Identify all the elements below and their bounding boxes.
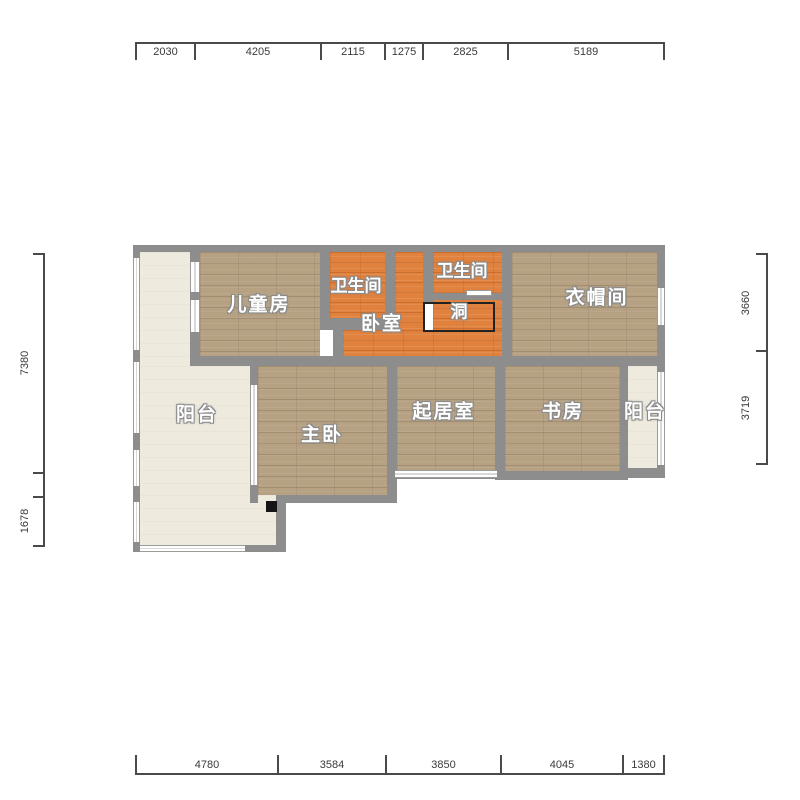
room-label-opening: 洞 [451, 298, 468, 323]
dim-label: 5189 [509, 44, 665, 60]
room-label-balcony-left: 阳台 [176, 400, 218, 427]
dim-label: 3584 [279, 755, 387, 773]
tick [33, 472, 45, 474]
window [133, 502, 140, 542]
window [190, 300, 200, 332]
wall [502, 245, 512, 358]
tick [33, 253, 45, 255]
dim-label: 2825 [424, 44, 509, 60]
shelf-bar [466, 290, 492, 296]
room-label-bath-left: 卫生间 [331, 272, 382, 297]
dimension-line-left: 7380 1678 [33, 253, 45, 547]
window [133, 450, 140, 486]
wall [620, 468, 665, 478]
column-marker [266, 501, 277, 512]
dim-label: 1380 [624, 755, 665, 773]
floor-plan-canvas: 2030 4205 2115 1275 2825 5189 4780 3584 … [0, 0, 800, 800]
window [250, 385, 258, 485]
dim-label: 3660 [740, 291, 752, 315]
room-label-cloakroom: 衣帽间 [565, 283, 628, 310]
window [133, 258, 140, 350]
window [133, 362, 140, 433]
tick [756, 463, 768, 465]
dim-label: 4045 [502, 755, 624, 773]
room-label-bedroom: 卧室 [361, 309, 403, 336]
floor-balcony-left [140, 252, 191, 366]
dim-label: 4780 [135, 755, 279, 773]
window [140, 545, 245, 552]
wall [276, 495, 397, 503]
tick [33, 496, 45, 498]
window [657, 288, 665, 325]
wall [495, 358, 505, 480]
floor-balcony-left [140, 366, 250, 498]
room-label-children-room: 儿童房 [227, 290, 290, 317]
window [190, 262, 200, 292]
dimension-line-top: 2030 4205 2115 1275 2825 5189 [135, 42, 665, 60]
dim-label: 2115 [322, 44, 386, 60]
dim-label: 1275 [386, 44, 424, 60]
dim-label: 3850 [387, 755, 502, 773]
wall [423, 245, 433, 303]
room-label-living-room: 起居室 [412, 397, 475, 424]
wall [495, 471, 628, 480]
tick [756, 350, 768, 352]
wall [387, 358, 397, 503]
dim-label: 4205 [196, 44, 322, 60]
room-label-master-bedroom: 主卧 [301, 420, 343, 447]
wall [333, 330, 343, 356]
room-label-bath-right: 卫生间 [437, 257, 488, 282]
window [395, 470, 497, 478]
wall [190, 356, 665, 366]
dimension-line-right: 3660 3719 [756, 253, 768, 465]
dim-label: 7380 [19, 351, 31, 375]
wall [133, 245, 665, 252]
dim-label: 1678 [19, 509, 31, 533]
dim-label: 3719 [740, 396, 752, 420]
room-label-balcony-right: 阳台 [624, 397, 666, 424]
tick [33, 545, 45, 547]
dimension-line-bottom: 4780 3584 3850 4045 1380 [135, 755, 665, 775]
dim-label: 2030 [135, 44, 196, 60]
tick [756, 253, 768, 255]
room-label-study: 书房 [542, 397, 584, 424]
